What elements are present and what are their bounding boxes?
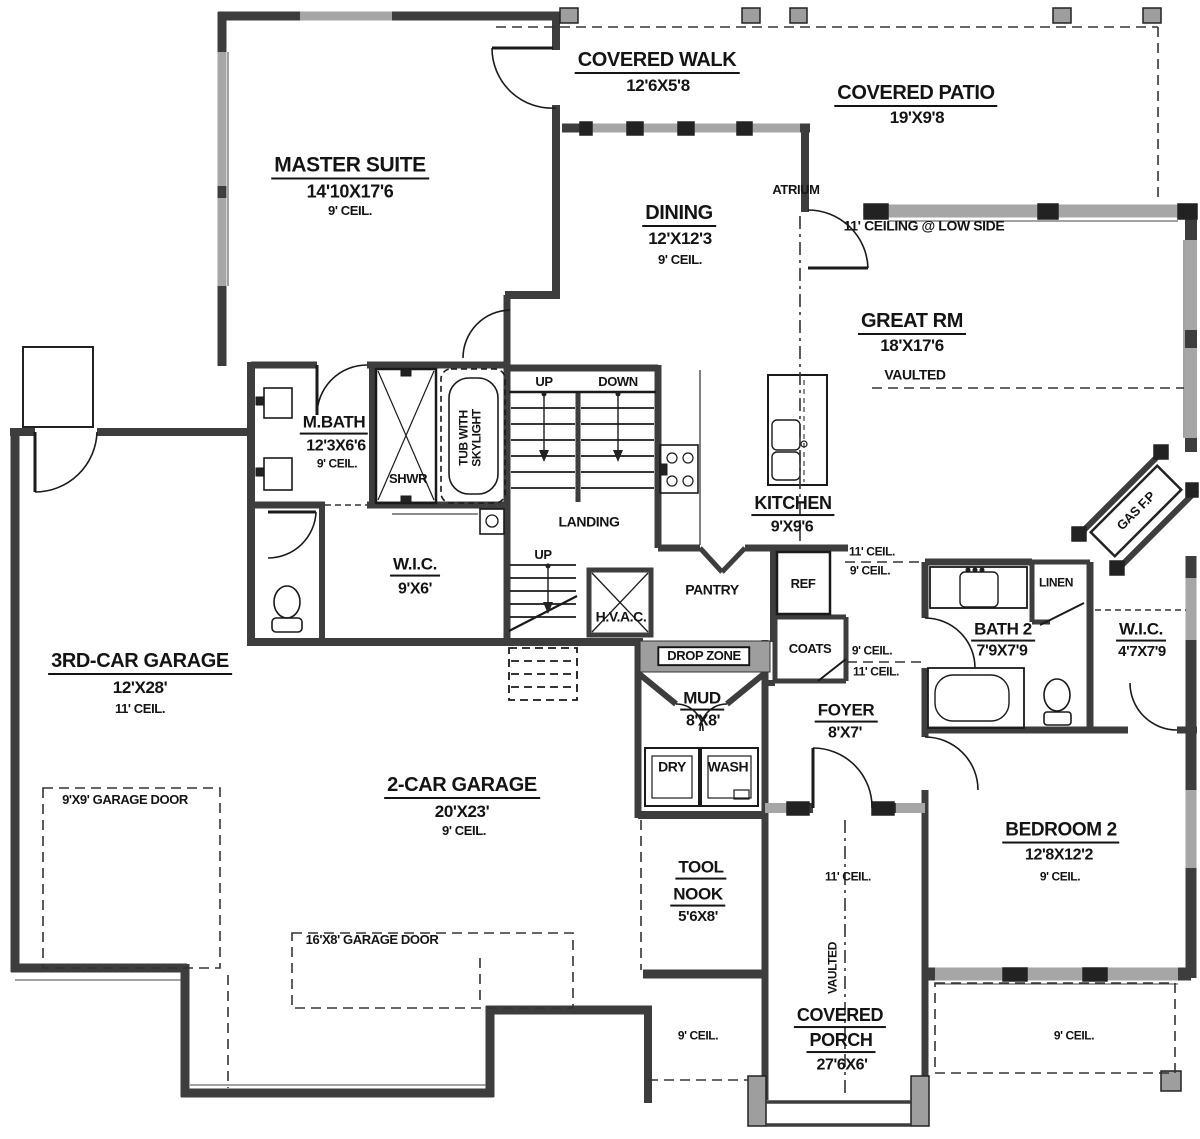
- room-dims-wic2: 4'7X7'9: [1118, 644, 1166, 660]
- storage-box: [23, 347, 93, 427]
- label-ceil-11b: 11' CEIL.: [853, 666, 899, 679]
- label-hvac: H.V.A.C.: [596, 610, 647, 625]
- room-label-tool-nook-2: NOOK: [670, 886, 725, 907]
- floor-plan-drawing: [0, 0, 1200, 1139]
- mbath-toilet: [272, 586, 302, 632]
- label-wash: WASH: [708, 760, 748, 775]
- washer-dryer: [645, 748, 758, 806]
- stove-fixture: [660, 370, 700, 545]
- room-label-covered-patio: COVERED PATIO: [834, 83, 997, 107]
- room-label-foyer: FOYER: [815, 702, 878, 723]
- room-dims-covered-porch: 27'6X6': [816, 1058, 867, 1075]
- room-ceil-bedroom2: 9' CEIL.: [1040, 871, 1080, 884]
- room-label-mud: MUD: [680, 690, 724, 711]
- room-ceil-garage2: 9' CEIL.: [442, 824, 486, 838]
- label-ceil-11-hall: 11' CEIL.: [825, 871, 871, 884]
- room-dims-bath2: 7'9X7'9: [976, 644, 1027, 661]
- label-ceil-9-left: 9' CEIL.: [678, 1030, 718, 1043]
- room-ceil-great-rm: VAULTED: [884, 368, 945, 383]
- room-dims-dining: 12'X12'3: [648, 230, 712, 248]
- label-ceiling-low-side: 11' CEILING @ LOW SIDE: [844, 219, 1005, 234]
- room-label-great-rm: GREAT RM: [858, 311, 966, 335]
- room-dims-wic-master: 9'X6': [398, 582, 432, 599]
- tub-label-line2: SKYLIGHT: [470, 409, 483, 466]
- tub-label-line1: TUB WITH: [457, 409, 470, 466]
- label-dry: DRY: [658, 760, 686, 775]
- room-label-covered-porch-2: PORCH: [806, 1031, 875, 1053]
- room-label-dining: DINING: [642, 203, 716, 227]
- room-dims-mud: 8'X8': [686, 714, 720, 731]
- mbath-vanity: [256, 388, 292, 490]
- label-tub-skylight: TUB WITH SKYLIGHT: [457, 409, 482, 466]
- room-label-kitchen: KITCHEN: [751, 494, 834, 516]
- kitchen-island: [768, 375, 827, 485]
- room-dims-master-suite: 14'10X17'6: [307, 183, 394, 202]
- room-label-covered-porch-1: COVERED: [794, 1006, 886, 1028]
- exterior-walls: [10, 12, 1197, 1103]
- room-dims-garage3: 12'X28': [113, 679, 167, 697]
- room-label-wic-master: W.I.C.: [390, 556, 440, 577]
- wic-chute: [392, 509, 504, 534]
- label-atrium: ATRIUM: [772, 183, 819, 197]
- label-garage-door-16: 16'X8' GARAGE DOOR: [306, 933, 439, 947]
- room-label-wic2: W.I.C.: [1116, 621, 1166, 642]
- room-label-bath2: BATH 2: [971, 621, 1035, 642]
- room-label-bedroom2: BEDROOM 2: [1002, 821, 1119, 844]
- room-dims-covered-walk: 12'6X5'8: [626, 77, 690, 95]
- label-ceil-9a: 9' CEIL.: [850, 565, 890, 578]
- room-dims-foyer: 8'X7': [828, 726, 862, 743]
- label-shwr: SHWR: [389, 472, 427, 486]
- hvac-unit: [589, 570, 651, 635]
- staircase: [509, 392, 656, 700]
- room-dims-kitchen: 9'X9'6: [771, 520, 814, 537]
- room-ceil-dining: 9' CEIL.: [658, 253, 702, 267]
- room-dims-covered-patio: 19'X9'8: [890, 109, 944, 127]
- label-stairs-up: UP: [535, 375, 552, 389]
- label-ref: REF: [791, 577, 816, 591]
- room-dims-m-bath: 12'3X6'6: [306, 439, 366, 456]
- room-dims-tool-nook: 5'6X8': [678, 909, 718, 925]
- room-ceil-master-suite: 9' CEIL.: [328, 204, 372, 218]
- label-pantry: PANTRY: [685, 583, 739, 598]
- label-linen: LINEN: [1039, 577, 1073, 590]
- label-vaulted-porch: VAULTED: [827, 942, 840, 994]
- label-stairs-up2: UP: [534, 548, 551, 562]
- room-dims-great-rm: 18'X17'6: [880, 337, 944, 355]
- room-label-garage2: 2-CAR GARAGE: [384, 775, 540, 799]
- label-garage-door-9: 9'X9' GARAGE DOOR: [62, 793, 188, 807]
- room-label-master-suite: MASTER SUITE: [271, 154, 429, 179]
- room-label-tool-nook-1: TOOL: [675, 859, 726, 880]
- label-ceil-11a: 11' CEIL.: [849, 546, 895, 559]
- label-drop-zone: DROP ZONE: [657, 646, 750, 666]
- room-dims-bedroom2: 12'8X12'2: [1025, 848, 1093, 865]
- porch-front-wall: [766, 1102, 911, 1125]
- label-stairs-down: DOWN: [598, 375, 638, 389]
- label-coats: COATS: [789, 642, 832, 656]
- label-ceil-9b: 9' CEIL.: [852, 645, 892, 658]
- floor-plan: MASTER SUITE 14'10X17'6 9' CEIL. COVERED…: [0, 0, 1200, 1139]
- room-label-m-bath: M.BATH: [300, 414, 368, 435]
- room-label-garage3: 3RD-CAR GARAGE: [48, 651, 232, 675]
- room-dims-garage2: 20'X23': [435, 803, 489, 821]
- label-landing: LANDING: [559, 515, 620, 530]
- room-label-covered-walk: COVERED WALK: [575, 50, 740, 74]
- room-ceil-garage3: 11' CEIL.: [115, 702, 165, 716]
- label-ceil-9-right: 9' CEIL.: [1054, 1030, 1094, 1043]
- room-ceil-m-bath: 9' CEIL.: [317, 458, 357, 471]
